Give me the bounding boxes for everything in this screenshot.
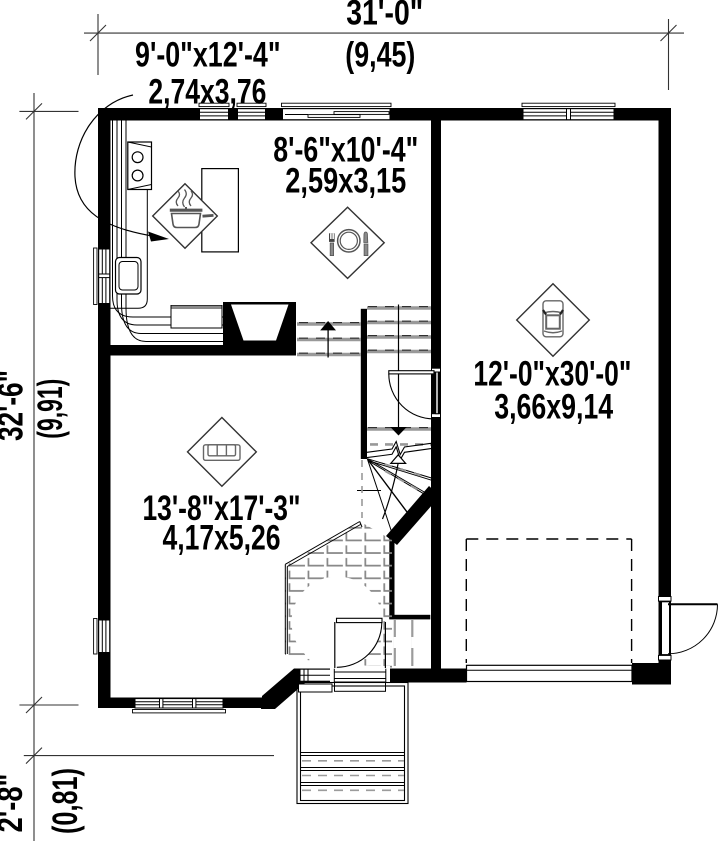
svg-text:(0,81): (0,81) bbox=[46, 768, 85, 834]
svg-text:32'-6": 32'-6" bbox=[0, 370, 31, 441]
svg-text:3,66x9,14: 3,66x9,14 bbox=[494, 388, 613, 427]
svg-text:4,17x5,26: 4,17x5,26 bbox=[163, 519, 281, 558]
svg-text:(9,91): (9,91) bbox=[31, 379, 70, 439]
svg-text:9'-0"x12'-4": 9'-0"x12'-4" bbox=[135, 35, 281, 74]
svg-text:2'-8": 2'-8" bbox=[0, 774, 30, 833]
svg-text:(9,45): (9,45) bbox=[345, 36, 415, 75]
svg-text:31'-0": 31'-0" bbox=[346, 0, 423, 33]
svg-text:2,74x3,76: 2,74x3,76 bbox=[148, 73, 266, 112]
svg-text:2,59x3,15: 2,59x3,15 bbox=[285, 162, 406, 201]
